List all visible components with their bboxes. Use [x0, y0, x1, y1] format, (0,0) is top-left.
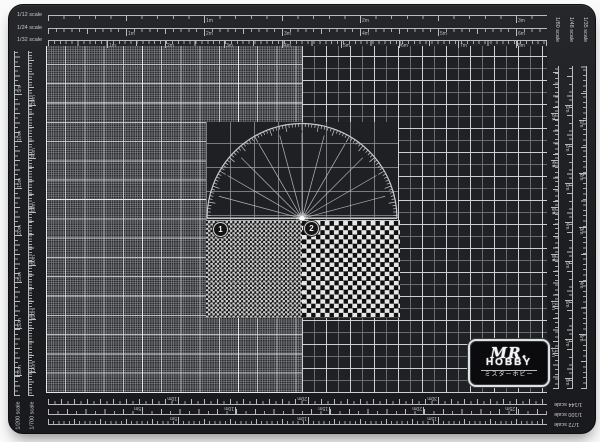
ruler-part [551, 207, 558, 208]
ruler-part [15, 51, 18, 396]
ruler-part: 100m [31, 306, 37, 322]
ruler-part [565, 339, 572, 340]
ruler-part [15, 282, 22, 283]
ruler-part [14, 51, 15, 396]
ruler-part: 3m [284, 31, 291, 37]
ruler-part [48, 28, 547, 29]
ruler-part: 3m [564, 179, 570, 195]
ruler-part: 10m [550, 297, 556, 313]
ruler-part [29, 319, 36, 320]
ruler-part [360, 16, 361, 23]
ruler-part: 1/32 scale [17, 37, 46, 44]
photo-stage: 1 2 1m2m3m1/12 scale 1m2m3m4m5m6m1/24 sc… [0, 0, 600, 442]
ruler-part [579, 227, 586, 228]
ruler-part: 15m [314, 405, 328, 411]
ruler-part [235, 407, 236, 414]
ruler-part [29, 158, 36, 159]
mr-hobby-logo: MR. HOBBY ミスターホビー [468, 339, 550, 387]
ruler-part [48, 404, 547, 405]
ruler-part: 1m [128, 31, 135, 37]
ruler-part [178, 417, 179, 424]
ruler-part [48, 411, 547, 414]
ruler-part [48, 15, 547, 16]
ruler-part: 1m [564, 101, 570, 117]
ruler-part [29, 372, 36, 373]
ruler-part: 15m [17, 175, 23, 191]
ruler-part [48, 401, 547, 404]
ruler-part: 2m [362, 18, 369, 24]
ruler-part [565, 222, 572, 223]
ruler-part: 1/72 scale [554, 420, 596, 427]
ruler-part: 2m [564, 140, 570, 156]
ruler-part: 10m [17, 128, 23, 144]
ruler-part: 20m [17, 222, 23, 238]
ruler-part [48, 424, 547, 425]
ruler-part: 1/48 scale [568, 17, 574, 65]
ruler-part: 5m [440, 31, 447, 37]
cutting-mat: 1 2 1m2m3m1/12 scale 1m2m3m4m5m6m1/24 sc… [8, 4, 596, 434]
ruler-part [29, 51, 34, 396]
ruler-part [579, 281, 586, 282]
ruler-part [555, 66, 558, 389]
ruler-part [423, 407, 424, 414]
ruler-part [15, 188, 22, 189]
ruler-part: 1/100 scale [554, 410, 596, 417]
ruler-part [567, 66, 572, 389]
marker-2-badge: 2 [304, 221, 319, 236]
ruler-part [516, 407, 517, 414]
ruler-part: 3m [578, 223, 584, 239]
ruler-part: 60m [31, 199, 37, 215]
marker-1-badge: 1 [213, 222, 228, 237]
ruler-part [565, 105, 572, 106]
ruler-part [178, 397, 179, 404]
ruler-part: 1m [578, 116, 584, 132]
ruler-part: 1/144 scale [554, 400, 596, 407]
ruler-part: 1/700 scale [30, 397, 37, 435]
ruler-part [360, 29, 361, 36]
ruler-part [551, 160, 558, 161]
ruler-part [438, 417, 439, 424]
ruler-part [579, 334, 586, 335]
ruler-part: 1/24 scale [17, 25, 46, 32]
ruler-part: 6m [518, 31, 525, 37]
ruler-part [15, 235, 22, 236]
ruler-part: 120m [31, 359, 37, 375]
ruler-part [15, 375, 22, 376]
ruler-part: 4m [578, 277, 584, 293]
ruler-part [558, 66, 559, 389]
ruler-part [569, 66, 572, 389]
ruler-part [516, 29, 517, 36]
ruler-part [15, 328, 22, 329]
ruler-part: 2m [206, 31, 213, 37]
ruler-part: 10m [163, 395, 177, 401]
ruler-part [329, 407, 330, 414]
ruler-part [48, 16, 547, 21]
protractor [206, 122, 398, 220]
ruler-part: 7m [564, 335, 570, 351]
ruler-part: 4m [362, 31, 369, 37]
ruler-part [551, 113, 558, 114]
ruler-part: 1m [206, 18, 213, 24]
ruler-part: 5m [163, 415, 177, 421]
ruler-part: 25m [17, 269, 23, 285]
ruler-part [308, 397, 309, 404]
ruler-part [565, 144, 572, 145]
ruler-part: 30m [17, 315, 23, 331]
ruler-part: 6m [550, 203, 556, 219]
ruler-part [48, 16, 547, 19]
ruler-part: 10m [293, 415, 307, 421]
ruler-part [579, 120, 586, 121]
ruler-part: 2m [578, 169, 584, 185]
ruler-part [28, 51, 29, 396]
ruler-part [565, 378, 572, 379]
ruler-part [48, 29, 547, 32]
ruler-part [142, 407, 143, 414]
ruler-part [516, 16, 517, 23]
logo-name-text: HOBBY [486, 358, 532, 368]
ruler-part [572, 66, 573, 389]
ruler-part: 1/12 scale [17, 12, 46, 19]
ruler-part [565, 300, 572, 301]
ruler-part [29, 105, 36, 106]
ruler-part: 8m [564, 374, 570, 390]
ruler-part: 6m [564, 296, 570, 312]
ruler-part [15, 51, 20, 396]
ruler-part [48, 40, 547, 41]
ruler-part: 1/200 scale [16, 397, 23, 435]
ruler-part [29, 212, 36, 213]
ruler-part [48, 419, 547, 424]
ruler-part: 30m [423, 395, 437, 401]
ruler-part [204, 16, 205, 23]
ruler-part [308, 417, 309, 424]
ruler-part [15, 94, 22, 95]
ruler-part: 80m [31, 252, 37, 268]
ruler-part: 20m [293, 395, 307, 401]
logo-katakana-text: ミスターホビー [481, 370, 536, 379]
ruler-part: 8m [550, 250, 556, 266]
ruler-part: 5m [564, 257, 570, 273]
ruler-part: 10m [220, 405, 234, 411]
ruler-part [581, 66, 586, 389]
ruler-part [204, 29, 205, 36]
ruler-part: 1/35 scale [582, 17, 588, 65]
ruler-part [586, 66, 587, 389]
ruler-part [438, 29, 439, 36]
ruler-part: 3m [518, 18, 525, 24]
ruler-part [282, 29, 283, 36]
ruler-part: 4m [550, 156, 556, 172]
ruler-part: 5m [17, 81, 23, 97]
ruler-part [551, 254, 558, 255]
ruler-part [29, 51, 32, 396]
ruler-part [583, 66, 586, 389]
ruler-part [48, 41, 547, 44]
ruler-part [48, 414, 547, 415]
ruler-part [29, 265, 36, 266]
ruler-part: 2m [550, 109, 556, 125]
ruler-part [438, 397, 439, 404]
ruler-part: 15m [423, 415, 437, 421]
ruler-part: 40m [31, 145, 37, 161]
ruler-part [579, 173, 586, 174]
ruler-part: 4m [564, 218, 570, 234]
ruler-part: 12m [550, 344, 556, 360]
ruler-part [565, 261, 572, 262]
ruler-part: 5m [127, 405, 141, 411]
ruler-part [15, 141, 22, 142]
ruler-part [551, 348, 558, 349]
ruler-part [553, 66, 558, 389]
ruler-part: 20m [408, 405, 422, 411]
ruler-part [565, 183, 572, 184]
ruler-part [551, 301, 558, 302]
ruler-part: 5m [578, 330, 584, 346]
ruler-part [48, 29, 547, 34]
ruler-part [126, 29, 127, 36]
ruler-part: 25m [501, 405, 515, 411]
ruler-part [48, 421, 547, 424]
ruler-part: 20m [31, 92, 37, 108]
ruler-part: 1/80 scale [554, 17, 560, 65]
checkerboard-coarse [302, 220, 400, 318]
ruler-part [48, 399, 547, 404]
ruler-part: 35m [17, 362, 23, 378]
ruler-part [48, 409, 547, 414]
